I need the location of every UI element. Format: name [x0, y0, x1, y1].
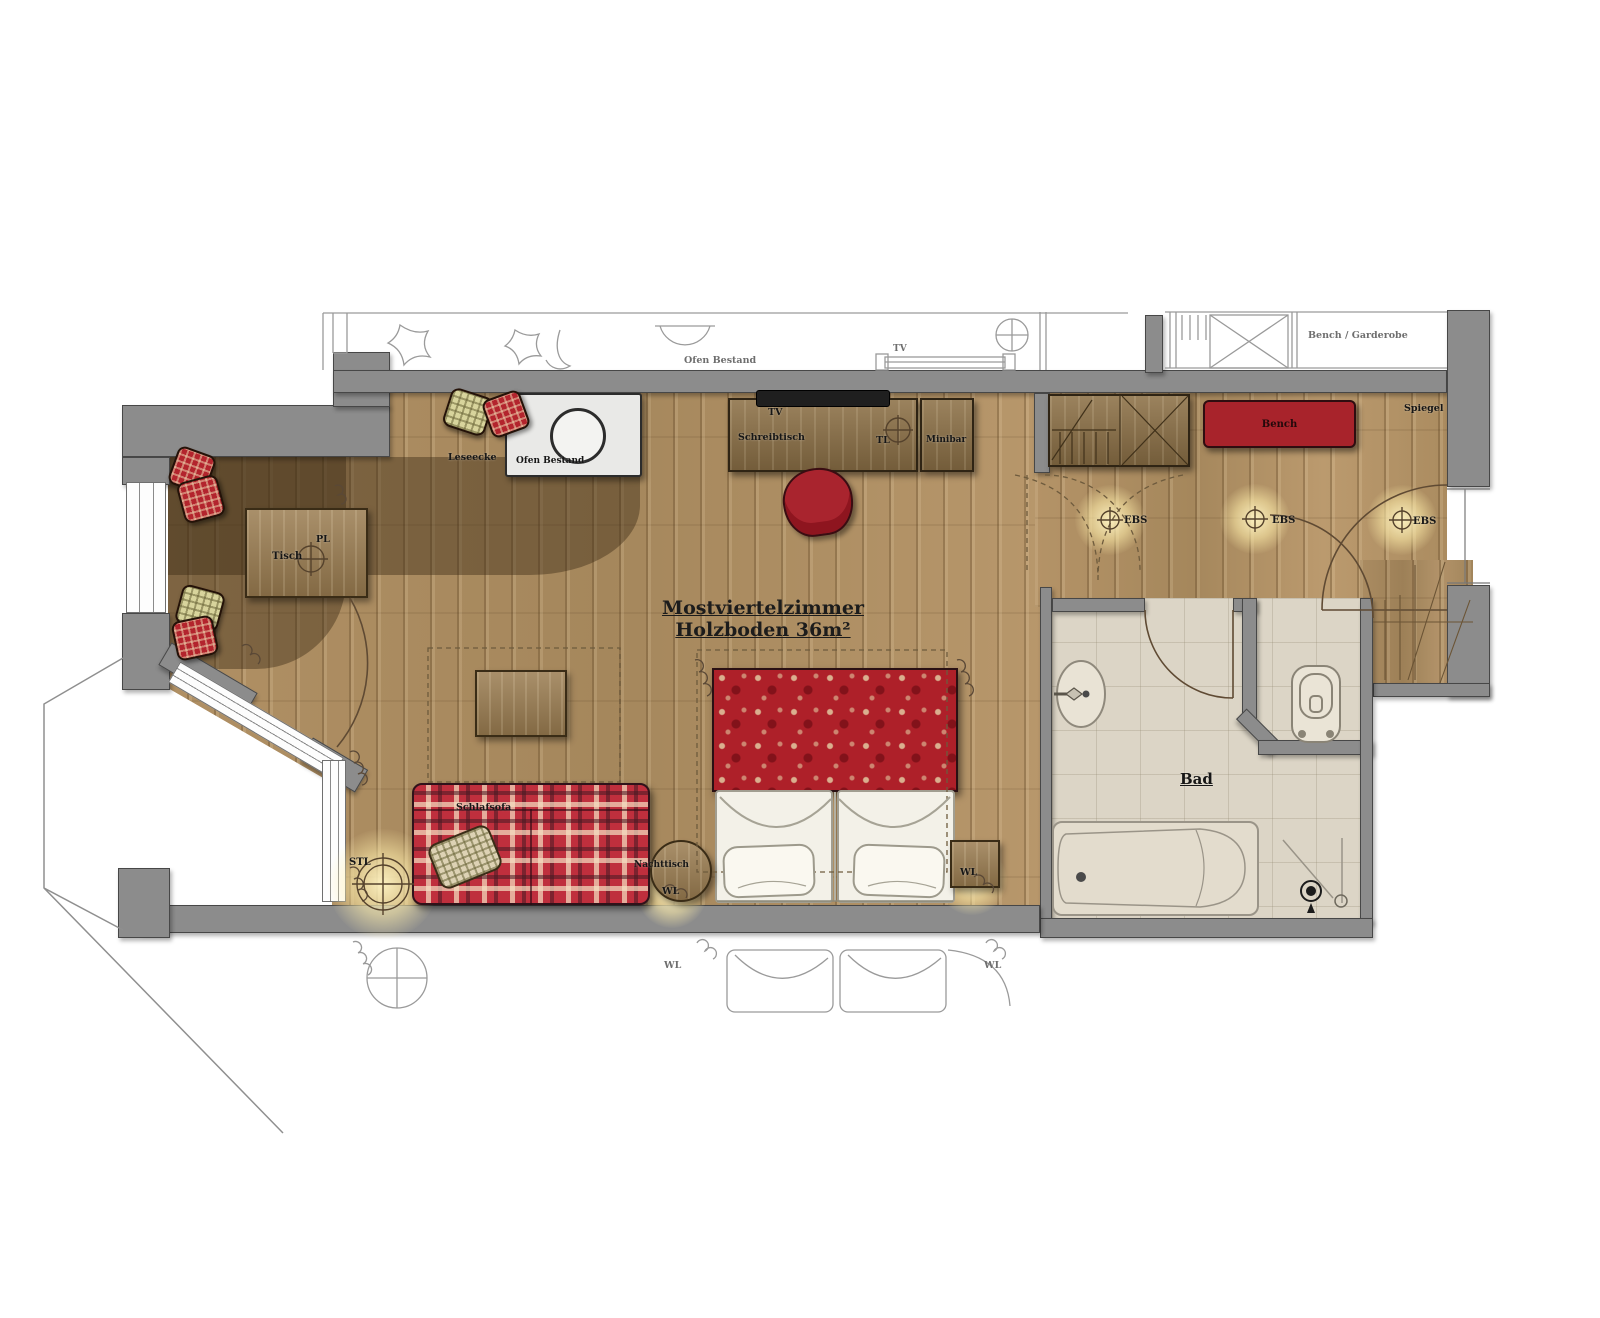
wardrobe — [1048, 394, 1190, 467]
wall-segment — [122, 405, 390, 457]
wall-segment — [1242, 598, 1257, 723]
bench-label: Bench — [1262, 419, 1297, 430]
sofa-bed — [412, 783, 650, 905]
wall-segment — [140, 905, 1040, 933]
existing-plan-sketch-bottom — [353, 940, 1010, 1012]
label-wl-sketch-1: WL — [664, 960, 681, 971]
wall-segment — [1373, 683, 1490, 697]
nightstand-square — [950, 840, 1000, 888]
sofa-seat-divider — [530, 809, 532, 905]
label-wl-sketch-2: WL — [984, 960, 1001, 971]
label-ofen-bestand-existing: Ofen Bestand — [684, 355, 756, 366]
wall-segment — [1040, 918, 1373, 938]
wall-segment — [1258, 740, 1373, 755]
label-tl: TL — [876, 435, 890, 446]
wall-segment — [122, 457, 170, 485]
label-tv: TV — [768, 407, 782, 418]
existing-plan-sketch-top — [323, 312, 1447, 370]
wall-segment — [1447, 310, 1490, 487]
label-schlafsofa: Schlafsofa — [456, 802, 511, 813]
label-ofen-bestand: Ofen Bestand — [516, 456, 584, 466]
wall-segment — [122, 613, 170, 690]
room-title: Mostviertelzimmer Holzboden 36m² — [613, 597, 913, 641]
table — [245, 508, 368, 598]
label-tv-existing: TV — [893, 344, 907, 354]
throw-pillow — [425, 822, 504, 891]
window — [126, 482, 166, 613]
label-bad: Bad — [1180, 770, 1213, 788]
coffee-table — [475, 670, 567, 737]
bed-cover — [712, 668, 958, 792]
label-spiegel: Spiegel — [1404, 403, 1443, 414]
wall-segment — [1447, 585, 1490, 697]
label-bench-garderobe: Bench / Garderobe — [1308, 330, 1408, 341]
label-stl: STL — [349, 857, 371, 868]
label-tisch: Tisch — [272, 551, 302, 562]
wall-segment — [1360, 598, 1373, 924]
label-ebs-3: EBS — [1413, 516, 1436, 527]
tv-flatscreen — [756, 390, 890, 407]
pillow — [170, 614, 219, 662]
label-ebs-2: EBS — [1272, 515, 1295, 526]
label-ebs-1: EBS — [1124, 515, 1147, 526]
nightstand-round — [650, 840, 712, 902]
label-wl-1: WL — [662, 886, 679, 897]
label-pl: PL — [316, 534, 330, 545]
room-title-line1: Mostviertelzimmer — [662, 597, 864, 619]
label-minibar: Minibar — [926, 435, 966, 445]
label-leseecke: Leseecke — [448, 452, 497, 463]
wall-segment — [1145, 315, 1163, 373]
bed-mattress-left — [715, 790, 833, 903]
room-title-line2: Holzboden 36m² — [675, 619, 850, 641]
wall-segment — [118, 868, 170, 938]
wall-segment — [333, 370, 1447, 393]
wall-segment — [1052, 598, 1145, 612]
label-schreibtisch: Schreibtisch — [738, 432, 805, 443]
bed-mattress-right — [837, 790, 955, 903]
bench: Bench — [1203, 400, 1356, 448]
label-nachttisch: Nachttisch — [634, 860, 689, 870]
floor-plan: Bench — [0, 0, 1600, 1318]
label-wl-2: WL — [960, 867, 977, 878]
wall-segment — [1040, 587, 1052, 924]
bathroom-floor — [1052, 598, 1373, 918]
